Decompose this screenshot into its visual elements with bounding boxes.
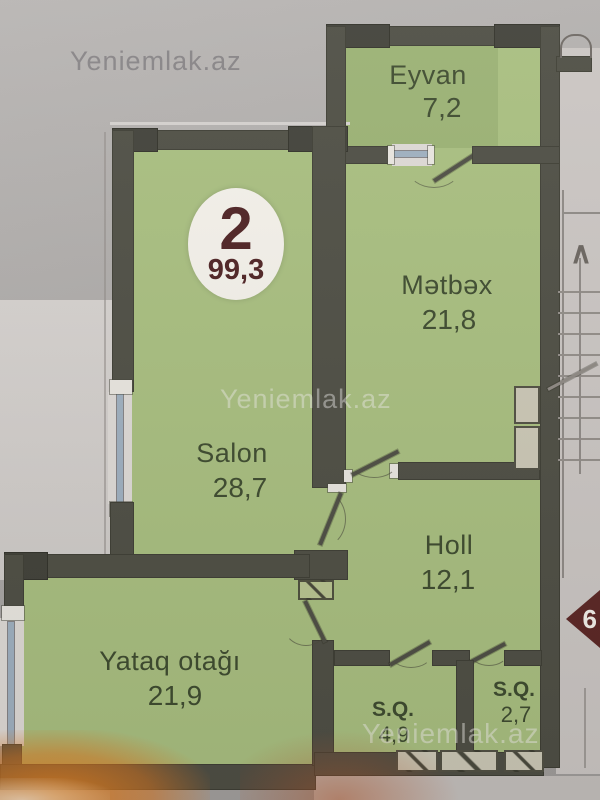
floorplan-photo: ∧ 6 2 99,3 Eyvan 7,2 Mətbəx 21,8 Salon 2…	[0, 0, 600, 800]
room-label-yataq: Yataq otağı	[99, 646, 241, 677]
wall-building-right	[540, 26, 560, 768]
windowframe-cap	[110, 380, 132, 394]
room-area-holl: 12,1	[421, 564, 476, 596]
door-arc-sq-large	[390, 640, 432, 668]
room-label-sq-small: S.Q.	[493, 678, 535, 702]
room-area-eyvan: 7,2	[423, 92, 462, 124]
outline-above-salon	[110, 122, 350, 125]
bottom-shaft-box	[396, 750, 438, 772]
room-label-metbex: Mətbəx	[401, 270, 493, 301]
room-area-metbex: 21,8	[422, 304, 477, 336]
door-arc-eyvan	[408, 150, 460, 188]
wall-holl-sq-left	[334, 650, 390, 666]
window-symbol-bedroom	[8, 622, 14, 744]
bottom-shaft-box	[440, 750, 498, 772]
unit-badge: 2 99,3	[188, 188, 284, 300]
windowframe-cap	[2, 606, 24, 620]
room-area-yataq: 21,9	[148, 680, 203, 712]
watermark-bottom: Yeniemlak.az	[362, 718, 540, 750]
staircase-center-line	[579, 258, 581, 474]
unit-number: 2	[219, 203, 252, 255]
room-label-salon: Salon	[196, 438, 268, 469]
entry-door-arch	[560, 34, 592, 58]
kitchen-duct-box	[514, 426, 540, 470]
wall-entry-stub	[556, 56, 592, 72]
watermark-top: Yeniemlak.az	[70, 46, 242, 77]
doorframe-cap	[344, 470, 352, 482]
unit-total-area: 99,3	[208, 255, 264, 285]
exterior-bottom-right	[314, 776, 600, 800]
room-label-holl: Holl	[425, 530, 474, 561]
wall-bedroom-top	[4, 554, 310, 578]
wall-bedroom-bottom	[0, 764, 316, 790]
wall-salon-left-upper	[112, 130, 134, 392]
wall-eyvan-kitchen-right	[472, 146, 560, 164]
watermark-middle: Yeniemlak.az	[220, 384, 392, 415]
wall-holl-sq-right	[504, 650, 542, 666]
room-label-eyvan: Eyvan	[389, 60, 467, 91]
window-symbol-salon	[117, 394, 123, 502]
wall-salon-kitchen	[312, 126, 346, 488]
door-arc-salon-holl	[296, 490, 346, 548]
stairwell-top-line	[562, 212, 600, 214]
bedroom-door-shaft	[298, 580, 334, 600]
staircase-up-arrow: ∧	[570, 236, 592, 271]
bottom-right-line	[584, 688, 586, 768]
floor-marker-label: 6	[583, 604, 597, 635]
doorframe-cap	[328, 484, 346, 492]
outline-left-of-salon	[104, 132, 106, 578]
doorframe-cap	[388, 146, 394, 164]
door-arc-sq-small	[470, 640, 508, 666]
wall-bedroom-sq	[312, 640, 334, 766]
exterior-left-wedge	[0, 300, 116, 580]
bottom-shaft-box	[504, 750, 544, 772]
door-arc-kitchen-holl	[350, 446, 398, 478]
kitchen-duct-box	[514, 386, 540, 424]
room-area-salon: 28,7	[213, 472, 268, 504]
door-arc-bedroom	[282, 598, 330, 646]
